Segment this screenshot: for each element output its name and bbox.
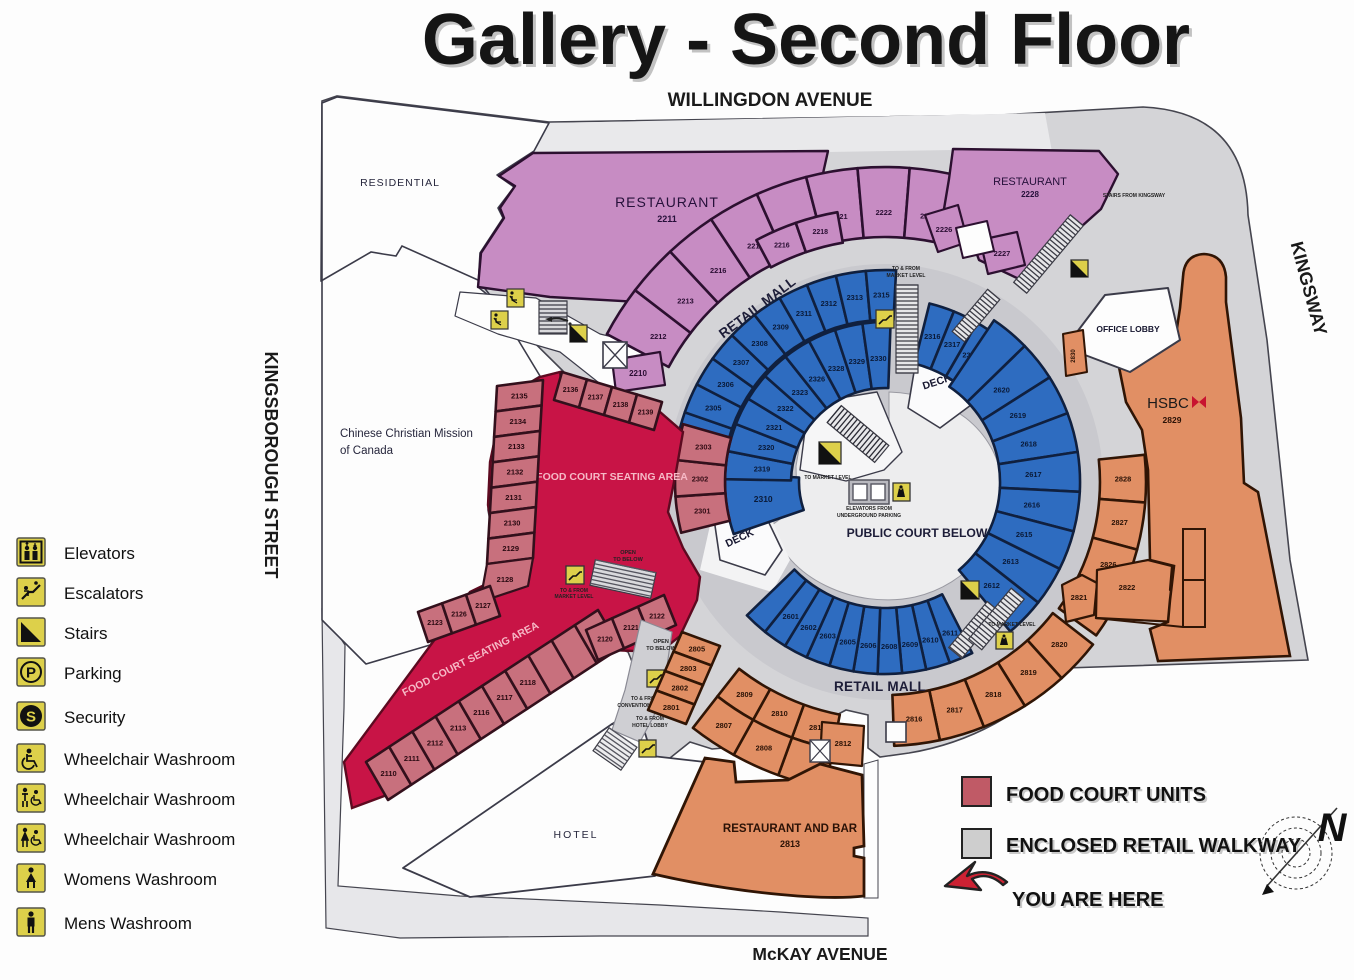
svg-text:OPEN: OPEN xyxy=(653,639,669,645)
svg-text:2132: 2132 xyxy=(507,468,524,477)
svg-text:OPEN: OPEN xyxy=(620,550,636,556)
svg-text:2820: 2820 xyxy=(1051,640,1067,649)
svg-text:FOOD COURT SEATING AREA: FOOD COURT SEATING AREA xyxy=(536,471,688,483)
svg-text:2116: 2116 xyxy=(473,708,489,717)
svg-text:2330: 2330 xyxy=(870,354,886,363)
svg-text:PUBLIC COURT BELOW: PUBLIC COURT BELOW xyxy=(847,526,988,540)
svg-text:STAIRS FROM KINGSWAY: STAIRS FROM KINGSWAY xyxy=(1103,193,1166,199)
svg-text:Stairs: Stairs xyxy=(64,624,107,643)
svg-text:2808: 2808 xyxy=(756,743,772,752)
svg-text:2812: 2812 xyxy=(835,739,852,748)
svg-text:RESTAURANT: RESTAURANT xyxy=(993,176,1067,188)
svg-text:Womens Washroom: Womens Washroom xyxy=(64,870,217,889)
svg-text:2615: 2615 xyxy=(1016,530,1032,539)
svg-text:2127: 2127 xyxy=(475,603,491,610)
svg-text:2123: 2123 xyxy=(427,620,443,627)
svg-text:Wheelchair Washroom: Wheelchair Washroom xyxy=(64,830,235,849)
svg-text:2128: 2128 xyxy=(497,575,514,584)
svg-text:MARKET LEVEL: MARKET LEVEL xyxy=(887,273,926,279)
svg-text:2307: 2307 xyxy=(733,358,749,367)
svg-text:2133: 2133 xyxy=(508,442,525,451)
svg-text:2827: 2827 xyxy=(1111,518,1127,527)
svg-text:2822: 2822 xyxy=(1119,583,1136,592)
svg-text:2117: 2117 xyxy=(496,693,512,702)
svg-text:2311: 2311 xyxy=(796,309,812,318)
svg-text:2226: 2226 xyxy=(936,225,953,234)
svg-text:2112: 2112 xyxy=(427,739,443,748)
svg-text:2830: 2830 xyxy=(1071,349,1077,363)
svg-text:2601: 2601 xyxy=(782,612,798,621)
svg-text:of Canada: of Canada xyxy=(340,445,394,457)
svg-text:2807: 2807 xyxy=(716,721,732,730)
svg-text:2821: 2821 xyxy=(1071,593,1088,602)
svg-text:2309: 2309 xyxy=(772,322,788,331)
svg-text:2326: 2326 xyxy=(809,374,825,383)
svg-text:Escalators: Escalators xyxy=(64,584,143,603)
svg-text:2218: 2218 xyxy=(813,229,829,236)
svg-text:RESTAURANT AND BAR: RESTAURANT AND BAR xyxy=(723,823,858,835)
svg-text:ELEVATORS FROM: ELEVATORS FROM xyxy=(846,506,892,512)
svg-text:2313: 2313 xyxy=(847,293,863,302)
svg-text:TO & FROM: TO & FROM xyxy=(892,266,920,272)
svg-text:2323: 2323 xyxy=(792,388,808,397)
svg-text:YOU ARE HERE: YOU ARE HERE xyxy=(1012,889,1164,911)
svg-text:2819: 2819 xyxy=(1020,668,1036,677)
svg-text:2322: 2322 xyxy=(777,404,793,413)
svg-text:2610: 2610 xyxy=(922,636,938,645)
svg-text:KINGSBOROUGH STREET: KINGSBOROUGH STREET xyxy=(261,351,281,578)
svg-text:2138: 2138 xyxy=(613,402,629,409)
svg-text:2620: 2620 xyxy=(993,385,1009,394)
svg-text:Mens Washroom: Mens Washroom xyxy=(64,914,192,933)
svg-text:2227: 2227 xyxy=(994,249,1011,258)
svg-text:2617: 2617 xyxy=(1025,470,1041,479)
svg-text:2129: 2129 xyxy=(502,544,519,553)
svg-text:2228: 2228 xyxy=(1021,190,1039,199)
svg-text:2613: 2613 xyxy=(1002,557,1018,566)
svg-text:UNDERGROUND PARKING: UNDERGROUND PARKING xyxy=(837,513,901,519)
svg-text:2602: 2602 xyxy=(800,623,816,632)
svg-text:HOTEL LOBBY: HOTEL LOBBY xyxy=(632,723,668,729)
svg-text:2305: 2305 xyxy=(705,404,721,413)
svg-text:2135: 2135 xyxy=(511,391,528,400)
svg-text:2328: 2328 xyxy=(828,364,844,373)
svg-text:RESIDENTIAL: RESIDENTIAL xyxy=(360,177,440,189)
svg-text:2211: 2211 xyxy=(657,214,677,224)
svg-text:2801: 2801 xyxy=(663,703,680,712)
svg-text:2312: 2312 xyxy=(821,299,837,308)
svg-text:2612: 2612 xyxy=(983,581,999,590)
svg-text:2303: 2303 xyxy=(695,442,711,451)
svg-text:2818: 2818 xyxy=(985,690,1001,699)
svg-text:2310: 2310 xyxy=(754,494,773,504)
svg-text:TO BELOW: TO BELOW xyxy=(646,646,676,652)
svg-text:2121: 2121 xyxy=(623,625,639,632)
svg-text:2302: 2302 xyxy=(692,474,708,483)
svg-text:2308: 2308 xyxy=(751,339,767,348)
svg-text:MARKET LEVEL: MARKET LEVEL xyxy=(555,594,594,600)
svg-text:HSBC: HSBC xyxy=(1147,395,1189,412)
svg-text:2618: 2618 xyxy=(1020,440,1036,449)
svg-text:OFFICE LOBBY: OFFICE LOBBY xyxy=(1096,324,1160,334)
svg-text:2113: 2113 xyxy=(450,723,466,732)
svg-text:N: N xyxy=(1318,806,1348,850)
svg-text:2212: 2212 xyxy=(650,332,666,341)
svg-text:Elevators: Elevators xyxy=(64,544,135,563)
svg-text:2802: 2802 xyxy=(671,683,688,692)
svg-text:TO & FROM: TO & FROM xyxy=(636,716,664,722)
svg-text:Wheelchair Washroom: Wheelchair Washroom xyxy=(64,750,235,769)
svg-text:2134: 2134 xyxy=(510,417,528,426)
svg-text:HOTEL: HOTEL xyxy=(553,829,598,841)
svg-text:2619: 2619 xyxy=(1010,411,1026,420)
svg-text:WILLINGDON AVENUE: WILLINGDON AVENUE xyxy=(668,90,873,111)
svg-text:2306: 2306 xyxy=(717,380,733,389)
svg-text:2137: 2137 xyxy=(588,395,604,402)
svg-text:2210: 2210 xyxy=(629,369,647,378)
svg-text:2329: 2329 xyxy=(849,357,865,366)
svg-text:2803: 2803 xyxy=(680,664,697,673)
svg-text:2817: 2817 xyxy=(946,706,962,715)
svg-text:RETAIL MALL: RETAIL MALL xyxy=(834,679,926,694)
svg-text:Security: Security xyxy=(64,708,126,727)
svg-text:2829: 2829 xyxy=(1163,415,1182,425)
svg-text:2321: 2321 xyxy=(766,423,782,432)
svg-text:McKAY AVENUE: McKAY AVENUE xyxy=(752,944,887,964)
svg-text:2320: 2320 xyxy=(758,443,774,452)
svg-text:2608: 2608 xyxy=(881,642,897,651)
svg-text:2316: 2316 xyxy=(924,332,940,341)
svg-text:2131: 2131 xyxy=(505,493,522,502)
svg-text:2609: 2609 xyxy=(902,640,918,649)
svg-text:2110: 2110 xyxy=(380,769,396,778)
svg-text:2301: 2301 xyxy=(694,507,710,516)
svg-text:2222: 2222 xyxy=(876,208,892,217)
svg-text:2805: 2805 xyxy=(688,644,705,653)
svg-text:2603: 2603 xyxy=(819,632,835,641)
svg-text:RESTAURANT: RESTAURANT xyxy=(615,194,719,210)
svg-text:2816: 2816 xyxy=(906,714,922,723)
svg-text:2216: 2216 xyxy=(710,266,726,275)
svg-text:2118: 2118 xyxy=(520,678,536,687)
svg-text:2317: 2317 xyxy=(944,340,960,349)
svg-text:2611: 2611 xyxy=(942,628,958,637)
svg-text:2111: 2111 xyxy=(404,754,420,763)
svg-text:Gallery - Second Floor: Gallery - Second Floor xyxy=(422,0,1190,80)
svg-text:2616: 2616 xyxy=(1024,500,1040,509)
svg-text:2120: 2120 xyxy=(597,637,613,644)
svg-text:2605: 2605 xyxy=(839,638,855,647)
svg-text:2810: 2810 xyxy=(771,709,787,718)
svg-text:2136: 2136 xyxy=(563,387,579,394)
svg-text:2809: 2809 xyxy=(736,690,752,699)
svg-text:2216: 2216 xyxy=(774,242,790,249)
svg-text:S: S xyxy=(26,709,36,726)
svg-text:P: P xyxy=(26,665,36,682)
svg-text:2139: 2139 xyxy=(638,410,654,417)
svg-text:2213: 2213 xyxy=(677,296,693,305)
svg-text:TO MARKET LEVEL: TO MARKET LEVEL xyxy=(804,475,851,481)
svg-text:TO MARKET LEVEL: TO MARKET LEVEL xyxy=(988,622,1035,628)
svg-text:2319: 2319 xyxy=(754,465,770,474)
svg-text:2828: 2828 xyxy=(1115,475,1131,484)
svg-text:TO BELOW: TO BELOW xyxy=(613,557,643,563)
svg-text:2606: 2606 xyxy=(860,641,876,650)
svg-text:Wheelchair Washroom: Wheelchair Washroom xyxy=(64,790,235,809)
svg-text:ENCLOSED RETAIL WALKWAY: ENCLOSED RETAIL WALKWAY xyxy=(1006,835,1302,857)
svg-text:2122: 2122 xyxy=(649,613,665,620)
svg-text:FOOD COURT UNITS: FOOD COURT UNITS xyxy=(1006,784,1206,806)
svg-text:2813: 2813 xyxy=(780,839,800,849)
svg-text:Chinese Christian Mission: Chinese Christian Mission xyxy=(340,428,473,440)
svg-text:2130: 2130 xyxy=(504,519,521,528)
svg-text:Parking: Parking xyxy=(64,664,122,683)
svg-text:2315: 2315 xyxy=(873,291,889,300)
svg-text:2126: 2126 xyxy=(451,612,467,619)
